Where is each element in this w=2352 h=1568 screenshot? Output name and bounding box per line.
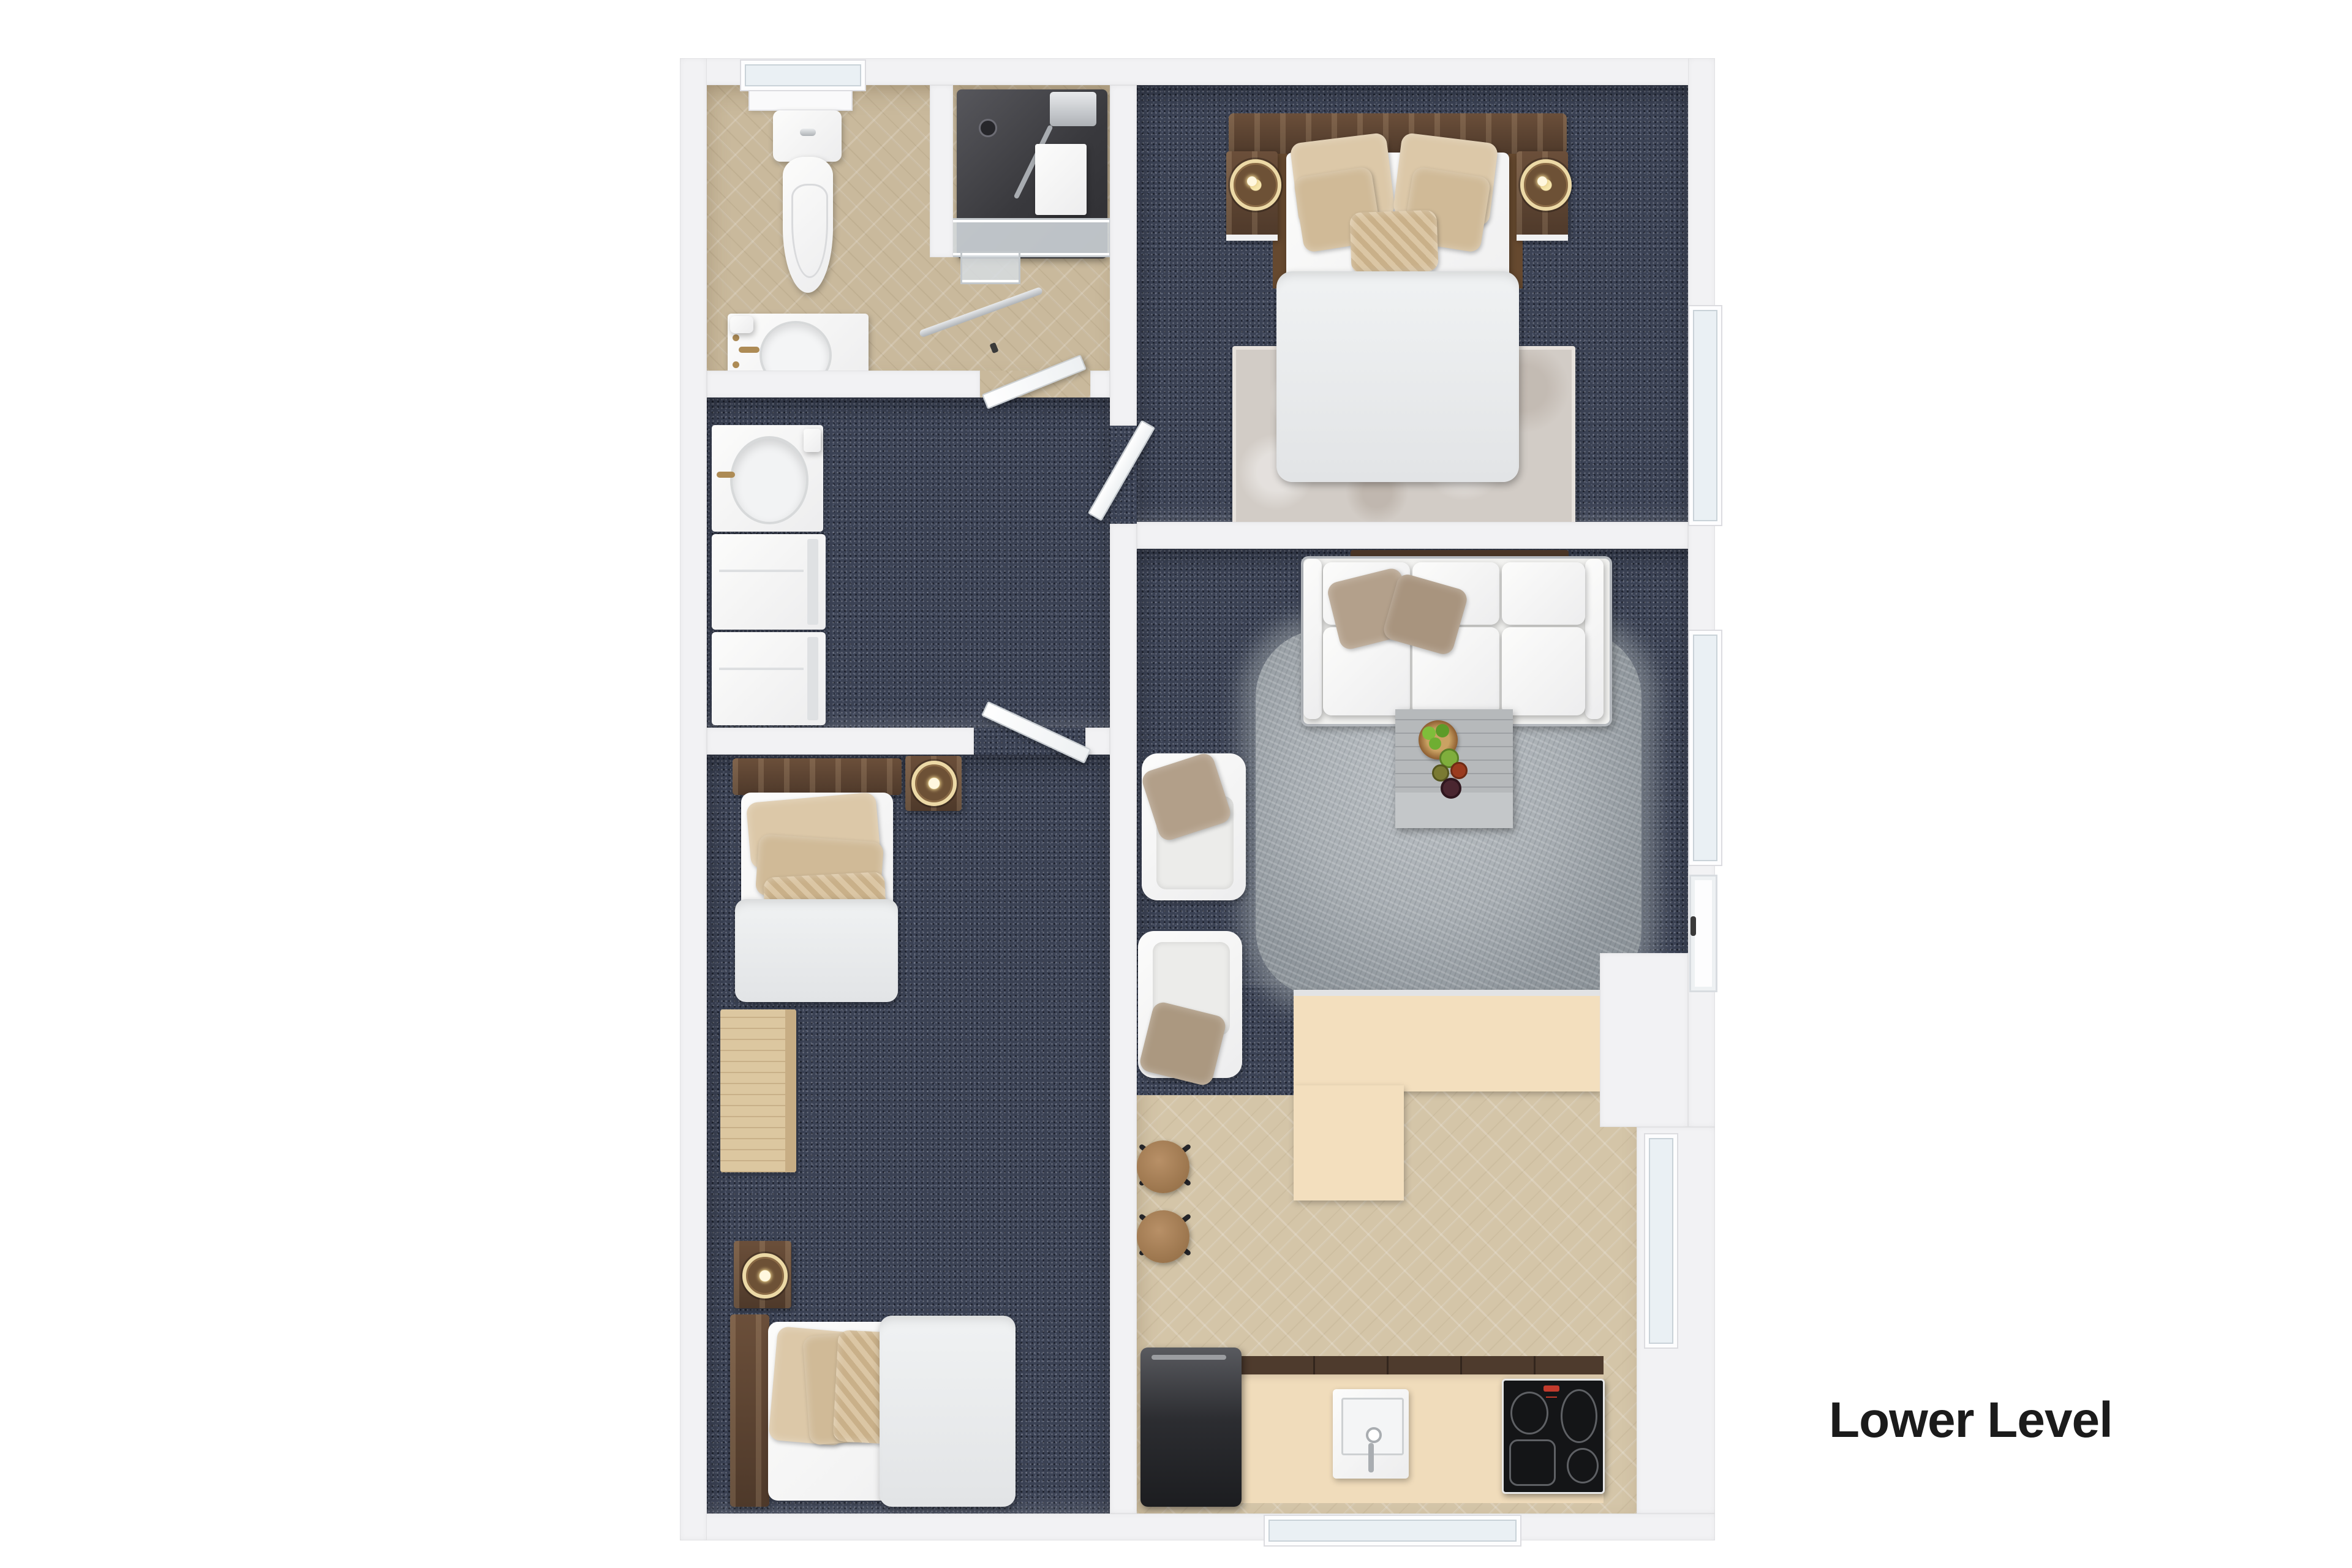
wall-bump-out — [1600, 953, 1688, 1127]
lime — [1436, 724, 1449, 737]
bathroom-south-wall-left — [707, 371, 980, 398]
laundry-south-wall-left — [707, 728, 974, 755]
sofa-armrest-left — [1303, 559, 1322, 719]
living-room-window — [1689, 631, 1721, 865]
floor-plan: Lower Level — [0, 0, 2352, 1568]
vanity-knob-hot — [733, 334, 739, 341]
refrigerator-handle — [1151, 1355, 1226, 1360]
bar-stool-1 — [1137, 1140, 1189, 1193]
level-title: Lower Level — [1829, 1395, 2113, 1445]
primary-table-lamp-left-bulb — [1247, 176, 1257, 186]
exterior-wall-left — [680, 58, 707, 1540]
washer-lid-seam — [719, 570, 804, 572]
dryer-door-seam — [719, 668, 804, 670]
exterior-wall-bottom — [680, 1513, 1715, 1540]
primary-bed-duvet — [1276, 271, 1519, 482]
primary-nightstand-left-base — [1226, 235, 1278, 241]
interior-wall-center-upper — [1110, 85, 1137, 426]
kitchen-faucet — [1368, 1443, 1374, 1472]
primary-bedroom-south-wall — [1137, 522, 1688, 549]
cooktop-burner — [1510, 1392, 1548, 1434]
dark-cup — [1441, 778, 1461, 799]
amber-cup — [1450, 762, 1468, 779]
primary-table-lamp-right-bulb — [1537, 176, 1547, 186]
sofa-armrest-right — [1585, 559, 1604, 719]
primary-bed-lumbar-pillow — [1349, 210, 1438, 274]
utility-sink-basin — [730, 436, 809, 524]
primary-table-lamp-left — [1230, 159, 1281, 211]
cooktop-burner-zone — [1509, 1439, 1556, 1486]
shower-glass-door — [960, 251, 1020, 284]
vanity-knob-cold — [733, 361, 739, 368]
interior-wall-center-lower — [1110, 524, 1137, 1513]
hand-towel — [730, 316, 753, 333]
island-counter-left-leg — [1294, 1085, 1404, 1200]
sofa-seat-cushion — [1502, 627, 1585, 715]
bar-stool-2 — [1137, 1210, 1189, 1263]
cooktop-indicator-lights — [1543, 1385, 1559, 1392]
lime — [1429, 737, 1441, 750]
dryer-control-panel — [807, 637, 818, 720]
bathroom-window — [741, 61, 865, 90]
primary-headboard — [1229, 113, 1567, 154]
cooktop-burner — [1561, 1389, 1597, 1443]
twin-bed-2-headboard — [730, 1314, 769, 1507]
refrigerator — [1140, 1347, 1242, 1507]
vanity-faucet — [739, 347, 759, 353]
table-lamp-2-bulb — [759, 1270, 771, 1281]
utility-sink-faucet — [717, 472, 735, 478]
bathroom-south-wall-right — [1090, 371, 1110, 398]
kitchen-sink-drain — [1366, 1427, 1382, 1443]
base-cabinet-tops — [1240, 1356, 1604, 1374]
kitchen-rear-window — [1265, 1516, 1520, 1545]
shower-partition-wall — [930, 85, 953, 257]
patio-door-handle — [1691, 916, 1696, 936]
shower-drain — [979, 119, 997, 137]
primary-nightstand-right-base — [1517, 235, 1568, 241]
primary-bedroom-window — [1689, 306, 1721, 525]
table-lamp-1-bulb — [929, 778, 940, 789]
shower-head-unit — [1050, 92, 1096, 126]
island-counter-top-bar — [1294, 990, 1600, 1091]
toilet-flush-button — [800, 129, 816, 136]
washer-control-panel — [807, 539, 818, 625]
dresser-front-edge — [785, 1009, 796, 1172]
soap-bottle — [804, 429, 821, 452]
toilet-tank — [773, 110, 842, 162]
sofa-back-cushion — [1502, 562, 1585, 625]
twin-bed-1-duvet — [735, 899, 898, 1002]
twin-bed-2-duvet — [880, 1316, 1016, 1507]
floor-plan-screenshot: Lower Level — [0, 0, 2352, 1568]
kitchen-side-window — [1645, 1134, 1677, 1347]
shower-shelf — [1035, 144, 1087, 215]
cooktop-burner — [1567, 1448, 1599, 1483]
twin-bed-1-headboard — [733, 758, 902, 795]
primary-table-lamp-right — [1520, 159, 1572, 211]
